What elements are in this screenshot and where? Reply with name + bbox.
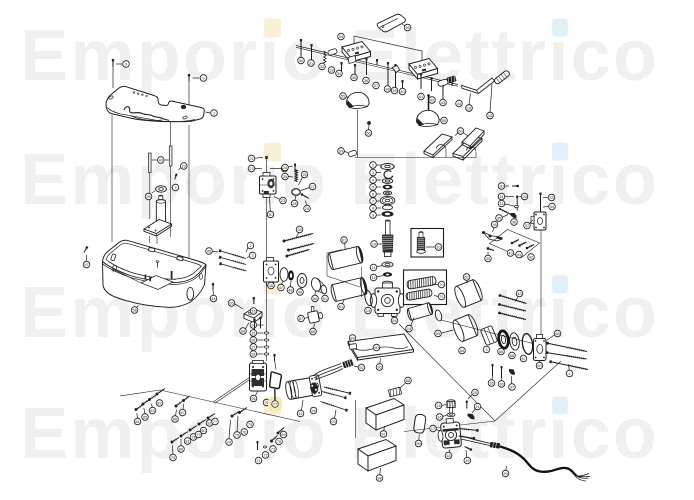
- svg-text:61: 61: [339, 305, 343, 309]
- svg-text:17: 17: [431, 427, 435, 431]
- svg-text:59: 59: [339, 149, 343, 153]
- svg-text:29: 29: [305, 207, 309, 211]
- svg-text:94: 94: [311, 409, 315, 413]
- svg-text:7: 7: [174, 186, 176, 190]
- svg-text:77: 77: [213, 420, 217, 424]
- svg-text:58: 58: [132, 308, 136, 312]
- svg-text:7: 7: [372, 199, 374, 203]
- svg-text:38: 38: [492, 223, 496, 227]
- svg-text:91: 91: [298, 412, 302, 416]
- svg-text:27: 27: [310, 185, 314, 189]
- svg-text:20: 20: [473, 391, 477, 395]
- svg-text:15: 15: [436, 404, 440, 408]
- svg-text:50: 50: [313, 297, 317, 301]
- svg-text:12: 12: [371, 276, 375, 280]
- svg-text:77: 77: [273, 403, 277, 407]
- svg-text:26: 26: [302, 173, 306, 177]
- svg-text:3: 3: [372, 171, 374, 175]
- svg-text:76: 76: [242, 430, 246, 434]
- svg-text:47: 47: [279, 286, 283, 290]
- svg-text:60: 60: [458, 129, 462, 133]
- svg-text:42: 42: [529, 255, 533, 259]
- svg-text:35: 35: [497, 216, 501, 220]
- svg-text:14: 14: [407, 327, 411, 331]
- svg-text:67: 67: [521, 357, 525, 361]
- svg-text:32: 32: [320, 65, 324, 69]
- svg-text:46: 46: [269, 284, 273, 288]
- svg-text:3: 3: [485, 348, 487, 352]
- svg-text:73: 73: [248, 423, 252, 427]
- svg-text:49: 49: [298, 290, 302, 294]
- svg-text:37: 37: [510, 385, 514, 389]
- svg-text:44: 44: [211, 297, 215, 301]
- svg-text:76: 76: [264, 401, 268, 405]
- svg-text:72: 72: [263, 453, 267, 457]
- svg-text:17: 17: [251, 345, 255, 349]
- svg-text:69: 69: [281, 433, 285, 437]
- svg-text:18: 18: [488, 114, 492, 118]
- svg-text:34: 34: [339, 35, 343, 39]
- svg-text:82: 82: [157, 401, 161, 405]
- svg-text:1: 1: [213, 111, 215, 115]
- svg-text:37: 37: [525, 224, 529, 228]
- svg-text:99: 99: [503, 472, 507, 476]
- svg-text:75: 75: [235, 433, 239, 437]
- svg-text:38: 38: [385, 87, 389, 91]
- svg-text:87: 87: [180, 411, 184, 415]
- svg-text:28: 28: [292, 202, 296, 206]
- svg-text:56: 56: [366, 131, 370, 135]
- svg-text:61: 61: [342, 238, 346, 242]
- svg-text:66: 66: [510, 354, 514, 358]
- svg-text:68: 68: [555, 332, 559, 336]
- svg-text:99: 99: [416, 442, 420, 446]
- svg-text:68: 68: [311, 330, 315, 334]
- svg-text:34: 34: [337, 72, 341, 76]
- svg-text:16: 16: [251, 309, 255, 313]
- svg-text:21: 21: [249, 157, 253, 161]
- svg-text:89: 89: [350, 336, 354, 340]
- svg-text:64: 64: [392, 319, 396, 323]
- svg-text:16: 16: [251, 338, 255, 342]
- svg-text:29: 29: [522, 195, 526, 199]
- svg-text:21: 21: [475, 405, 479, 409]
- svg-text:8: 8: [372, 206, 374, 210]
- svg-text:65: 65: [229, 301, 233, 305]
- svg-text:35: 35: [352, 76, 356, 80]
- svg-text:55: 55: [341, 94, 345, 98]
- svg-text:80: 80: [179, 447, 183, 451]
- svg-text:57: 57: [84, 263, 88, 267]
- svg-text:86: 86: [173, 417, 177, 421]
- svg-text:92: 92: [359, 366, 363, 370]
- svg-text:11: 11: [372, 266, 376, 270]
- svg-text:71: 71: [256, 459, 260, 463]
- svg-text:30: 30: [299, 59, 303, 63]
- svg-text:70: 70: [277, 440, 281, 444]
- svg-text:31: 31: [499, 195, 503, 199]
- svg-text:9: 9: [372, 213, 374, 217]
- svg-text:30: 30: [268, 213, 272, 217]
- svg-text:97: 97: [381, 432, 385, 436]
- svg-text:4: 4: [568, 372, 570, 376]
- svg-text:22: 22: [249, 167, 253, 171]
- svg-text:85: 85: [143, 415, 147, 419]
- svg-text:69: 69: [537, 364, 541, 368]
- svg-text:39: 39: [486, 257, 490, 261]
- svg-text:23: 23: [182, 164, 186, 168]
- svg-text:25: 25: [283, 175, 287, 179]
- svg-text:39: 39: [146, 195, 150, 199]
- svg-text:66: 66: [241, 329, 245, 333]
- svg-text:83: 83: [150, 409, 154, 413]
- svg-text:62: 62: [464, 275, 468, 279]
- svg-text:88: 88: [406, 379, 410, 383]
- svg-text:18: 18: [446, 454, 450, 458]
- svg-text:79: 79: [171, 456, 175, 460]
- svg-text:13: 13: [366, 309, 370, 313]
- svg-text:35: 35: [489, 381, 493, 385]
- svg-text:95: 95: [377, 365, 381, 369]
- svg-text:30: 30: [499, 184, 503, 188]
- svg-text:34: 34: [550, 205, 554, 209]
- svg-text:41: 41: [419, 95, 423, 99]
- svg-text:43: 43: [517, 292, 521, 296]
- svg-text:40: 40: [159, 158, 163, 162]
- svg-text:3: 3: [251, 254, 253, 258]
- svg-text:19: 19: [465, 459, 469, 463]
- svg-text:32: 32: [499, 202, 503, 206]
- svg-text:9: 9: [202, 76, 204, 80]
- svg-text:16: 16: [437, 415, 441, 419]
- svg-text:33: 33: [329, 68, 333, 72]
- svg-text:96: 96: [405, 26, 409, 30]
- svg-text:79: 79: [196, 433, 200, 437]
- svg-text:31: 31: [309, 61, 313, 65]
- svg-text:40: 40: [400, 90, 404, 94]
- svg-text:55: 55: [442, 119, 446, 123]
- svg-text:24: 24: [283, 166, 287, 170]
- svg-text:36: 36: [364, 79, 368, 83]
- svg-text:9: 9: [125, 62, 127, 66]
- svg-text:96: 96: [251, 397, 255, 401]
- svg-text:2: 2: [372, 163, 374, 167]
- svg-text:41: 41: [517, 253, 521, 257]
- svg-text:51: 51: [323, 297, 327, 301]
- svg-text:43: 43: [441, 101, 445, 105]
- svg-text:73: 73: [271, 447, 275, 451]
- svg-text:70: 70: [439, 283, 443, 287]
- svg-text:90: 90: [374, 346, 378, 350]
- svg-text:81: 81: [185, 439, 189, 443]
- svg-text:5: 5: [372, 185, 374, 189]
- svg-text:10: 10: [372, 242, 376, 246]
- svg-text:67: 67: [299, 317, 303, 321]
- svg-text:40: 40: [508, 251, 512, 255]
- svg-text:45: 45: [207, 249, 211, 253]
- svg-text:6: 6: [372, 192, 374, 196]
- svg-text:33: 33: [549, 196, 553, 200]
- svg-text:65: 65: [499, 350, 503, 354]
- svg-text:78: 78: [191, 435, 195, 439]
- svg-text:64: 64: [460, 349, 464, 353]
- svg-text:80: 80: [201, 429, 205, 433]
- svg-text:98: 98: [377, 476, 381, 480]
- svg-text:42: 42: [430, 98, 434, 102]
- svg-text:39: 39: [392, 89, 396, 93]
- svg-text:23: 23: [281, 199, 285, 203]
- svg-text:15: 15: [251, 331, 255, 335]
- svg-text:10: 10: [436, 245, 440, 249]
- svg-text:4: 4: [372, 178, 374, 182]
- svg-text:74: 74: [227, 440, 231, 444]
- svg-text:2: 2: [249, 244, 251, 248]
- svg-text:81: 81: [207, 421, 211, 425]
- svg-text:36: 36: [499, 382, 503, 386]
- svg-text:71: 71: [439, 295, 443, 299]
- svg-text:93: 93: [331, 420, 335, 424]
- svg-text:18: 18: [251, 352, 255, 356]
- svg-text:36: 36: [512, 220, 516, 224]
- svg-text:44: 44: [457, 102, 461, 106]
- svg-text:84: 84: [135, 420, 139, 424]
- svg-text:63: 63: [436, 332, 440, 336]
- svg-text:37: 37: [374, 84, 378, 88]
- svg-text:19: 19: [467, 106, 471, 110]
- svg-text:48: 48: [288, 288, 292, 292]
- svg-text:26: 26: [297, 228, 301, 232]
